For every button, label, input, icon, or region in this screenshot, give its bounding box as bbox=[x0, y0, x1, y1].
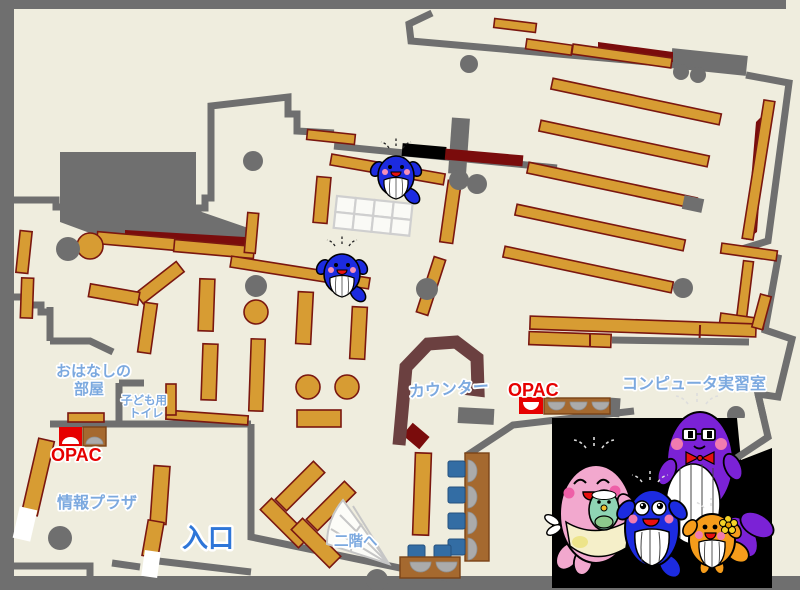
study-table-grid bbox=[334, 196, 413, 236]
label-opac-left: OPAC bbox=[51, 445, 102, 465]
chair bbox=[434, 545, 451, 558]
opac-terminal-left bbox=[59, 427, 106, 446]
label-computer-room: コンピュータ実習室 bbox=[622, 374, 766, 393]
label-opac-right: OPAC bbox=[508, 380, 559, 400]
baby-whale bbox=[589, 490, 619, 530]
label-story-room: おはなしの bbox=[56, 363, 131, 380]
chair bbox=[448, 487, 465, 503]
chair bbox=[408, 545, 425, 558]
label-stairs-up: 二階へ bbox=[334, 532, 378, 550]
label-info-plaza: 情報プラザ bbox=[57, 493, 137, 512]
library-floor-map: おはなしの 部屋 子ども用 トイレ OPAC 情報プラザ 入口 カウンター OP… bbox=[0, 0, 800, 590]
label-story-room-2: 部屋 bbox=[74, 380, 104, 398]
label-kids-toilet-2: トイレ bbox=[129, 407, 164, 420]
chair bbox=[448, 513, 465, 529]
chair bbox=[448, 461, 465, 477]
label-kids-toilet: 子ども用 bbox=[121, 394, 167, 407]
label-entrance: 入口 bbox=[182, 523, 234, 553]
